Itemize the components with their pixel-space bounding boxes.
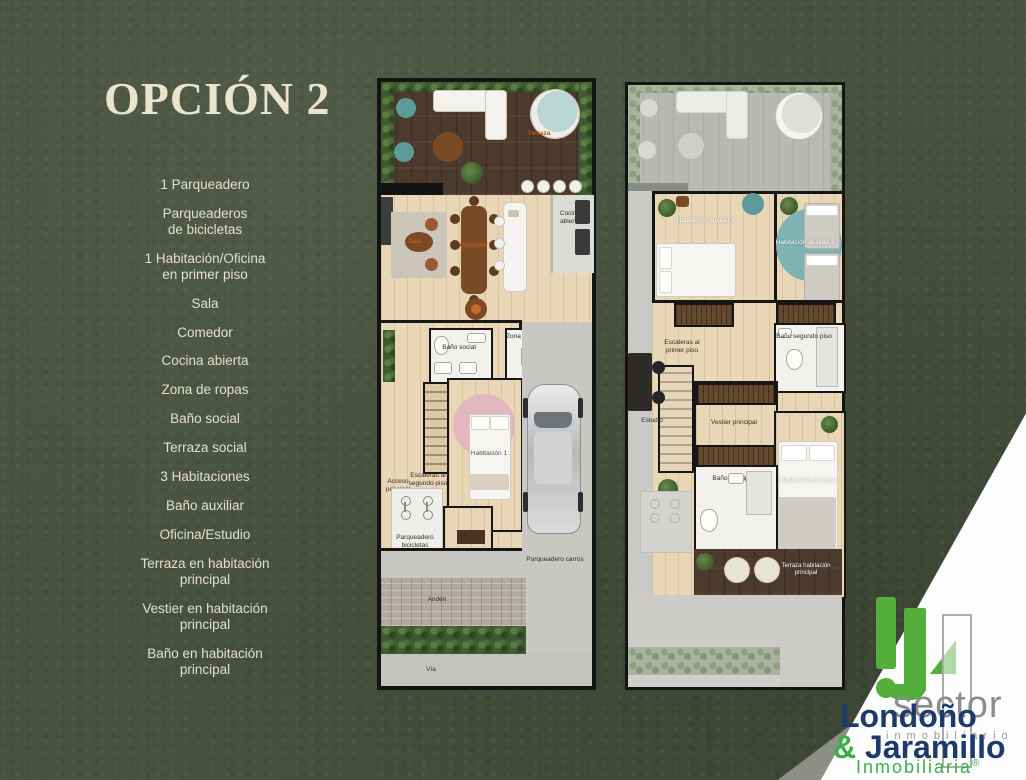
- feature-list: 1 Parqueadero Parqueaderos de bicicletas…: [95, 177, 315, 677]
- feature-item: Parqueaderos de bicicletas: [163, 206, 248, 238]
- feature-item: Terraza social: [163, 440, 246, 456]
- feature-item: Terraza en habitación principal: [140, 556, 269, 588]
- ghost-bike-parking: [640, 491, 692, 553]
- shoe-cabinet: [457, 530, 485, 544]
- feature-item: Oficina/Estudio: [160, 527, 251, 543]
- label-hab-aux2: Habitación auxiliar 2: [662, 217, 750, 225]
- floor-plan-1: Terraza Sala Comedor Cocina abierta: [377, 78, 596, 690]
- dining-table: [461, 206, 487, 294]
- ghost-hedge: [628, 647, 780, 675]
- study-desk: [628, 353, 652, 411]
- label-terraza-principal: Terraza habitación principal: [770, 563, 842, 577]
- ghost-sidewalk: [628, 595, 842, 647]
- label-via: Vía: [409, 666, 453, 674]
- label-hab-aux3: Habitación auxiliar 3: [772, 239, 838, 247]
- feature-item: 1 Habitación/Oficina en primer piso: [145, 251, 266, 283]
- feature-item: 3 Habitaciones: [160, 469, 249, 485]
- label-terraza: Terraza: [511, 130, 567, 138]
- logo-ampersand: &: [833, 729, 856, 765]
- feature-item: Vestier en habitación principal: [142, 601, 267, 633]
- label-anden: Andén: [407, 596, 467, 604]
- plant: [461, 162, 483, 184]
- feature-item: 1 Parqueadero: [160, 177, 249, 193]
- label-parq-carros: Parqueadero carros: [519, 556, 591, 564]
- label-habitacion1: Habitación 1: [463, 450, 515, 458]
- label-estudio: Estudio: [628, 417, 676, 425]
- label-bano-segundo: Baño segundo piso: [774, 333, 834, 341]
- hedge: [381, 626, 526, 654]
- floor-plan-2: Habitación auxiliar 2 Habitación auxilia…: [625, 82, 845, 690]
- label-cocina: Cocina abierta: [549, 210, 591, 226]
- label-bano-social: Baño social: [431, 344, 487, 352]
- feature-item: Cocina abierta: [161, 353, 248, 369]
- label-hab-principal: Habitación principal: [776, 477, 840, 485]
- label-sala: Sala: [391, 238, 439, 246]
- bar-counter: [381, 183, 443, 195]
- registered-mark: ®: [972, 758, 981, 769]
- label-escaleras-2: Escaleras al primer piso: [652, 339, 712, 355]
- page-title: OPCIÓN 2: [104, 72, 331, 125]
- logo-subtitle: Inmobiliaria®: [856, 757, 981, 778]
- fridge: [575, 229, 590, 255]
- slide-canvas: OPCIÓN 2 1 Parqueadero Parqueaderos de b…: [0, 0, 1026, 780]
- feature-item: Baño social: [170, 411, 240, 427]
- feature-item: Baño auxiliar: [166, 498, 244, 514]
- terrace-table: [433, 132, 463, 162]
- feature-item: Zona de ropas: [161, 382, 248, 398]
- label-vestier: Vestier principal: [700, 419, 768, 427]
- feature-item: Baño en habitación principal: [147, 646, 263, 678]
- feature-item: Comedor: [177, 325, 233, 341]
- feature-item: Sala: [191, 296, 218, 312]
